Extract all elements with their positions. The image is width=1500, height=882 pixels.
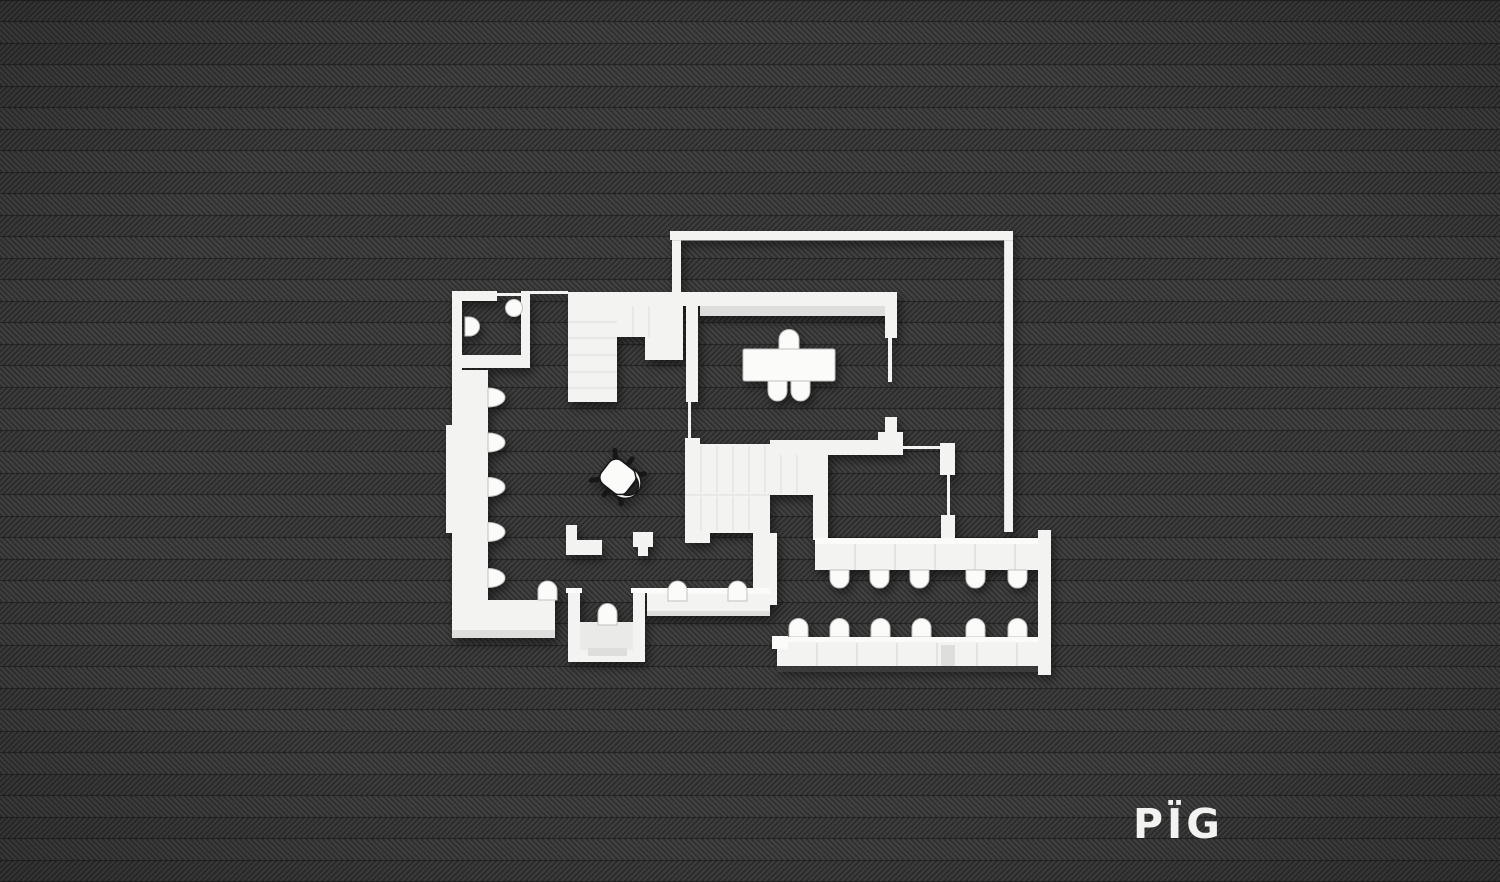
wc-door-line [497,293,521,296]
seat-icon [910,570,929,588]
terrace-rail-right [1004,240,1013,532]
terrace-rail-left [672,240,681,294]
bottom-wall-top [647,588,770,594]
bottom-left-wall [462,600,555,632]
seat-icon [871,619,890,638]
side-room-glass-right [947,475,950,515]
terrace-rail-top [670,231,1013,240]
dining-table [743,349,835,381]
bottom-left-wall-shade [452,630,555,638]
dining-chair-icon [779,330,799,350]
left-wall-step [446,425,452,533]
stair-landing [645,337,665,360]
side-room-wall-left [813,442,828,540]
seat-icon [1008,570,1027,588]
stair-door-line [688,402,691,438]
wall-link-wc-stairs [528,291,568,294]
porch-cap-left [566,588,582,593]
dining-chair-icon [768,381,787,401]
bench-seat-icon [668,581,687,601]
wc-wall-right [521,291,530,360]
counter-gray-block [941,645,955,666]
stair-flight-narrow [685,495,770,533]
counter-lower-end [772,636,788,649]
porch-floor [580,622,633,652]
dining-chair-icon [791,381,810,401]
seat-icon [830,570,849,588]
seat-icon [830,619,849,638]
porch-cap-right [631,588,647,593]
seat-icon [789,619,808,638]
left-outer-wall [452,368,462,632]
stair-shaft-wall [665,306,683,360]
seat-icon [966,619,985,638]
left-inner-band [462,370,488,602]
counter-upper-top [815,538,1038,544]
floor-plan-scene: PÏG [0,0,1500,882]
washbasin-icon [506,300,523,317]
dining-wall-ledge [700,306,885,316]
side-room-pier-ne [940,443,955,475]
background-vignette [0,0,1500,882]
porch-step [588,648,627,656]
dining-wall-right [885,292,897,338]
counter-lower-top [777,637,1038,642]
seat-icon [1008,619,1027,638]
stair-pier-bottom [685,533,710,543]
seat-icon [966,570,985,588]
dining-wall-left [686,292,698,402]
seat-icon [912,619,931,638]
wc-wall-bottom [452,355,530,368]
bench-seat-icon [728,581,747,601]
side-room-glass-top [903,446,940,449]
brand-logo: PÏG [1133,800,1224,848]
north-wall-band [568,292,897,306]
auditorium-wall-right [1038,530,1051,675]
dining-window-line [888,338,892,382]
side-room-wall-top [770,440,903,455]
porch-seat-icon [598,604,617,626]
stair-flight-top [617,306,665,337]
bench-seat-icon [538,581,557,600]
seat-icon [870,570,889,588]
